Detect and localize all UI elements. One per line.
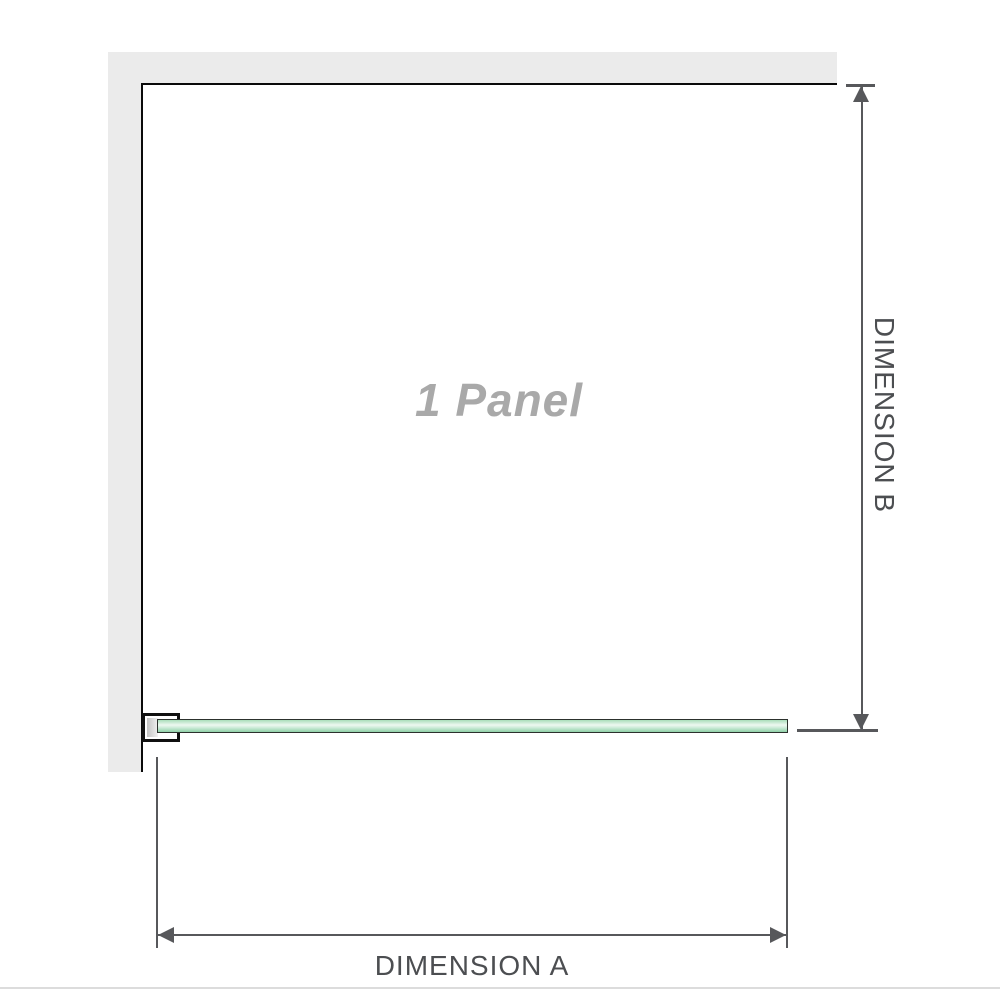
dimension-a-line xyxy=(158,934,786,937)
dimension-b-label: DIMENSION B xyxy=(868,317,900,513)
wall-left xyxy=(108,52,142,772)
shower-panel-diagram: 1 Panel DIMENSION B DIMENSION A xyxy=(0,0,1000,1000)
panel-outline xyxy=(141,83,837,772)
arrow-right-icon xyxy=(770,927,786,943)
arrow-up-icon xyxy=(853,86,869,102)
wall-top xyxy=(108,52,837,83)
dimension-a-label: DIMENSION A xyxy=(375,950,570,982)
bottom-divider xyxy=(0,987,1000,989)
dimension-a-tick-left xyxy=(156,757,159,948)
arrow-down-icon xyxy=(853,714,869,730)
arrow-left-icon xyxy=(158,927,174,943)
glass-panel xyxy=(157,719,788,733)
dimension-b-line xyxy=(861,86,864,729)
dimension-a-tick-right xyxy=(786,757,789,948)
panel-label: 1 Panel xyxy=(415,373,583,427)
